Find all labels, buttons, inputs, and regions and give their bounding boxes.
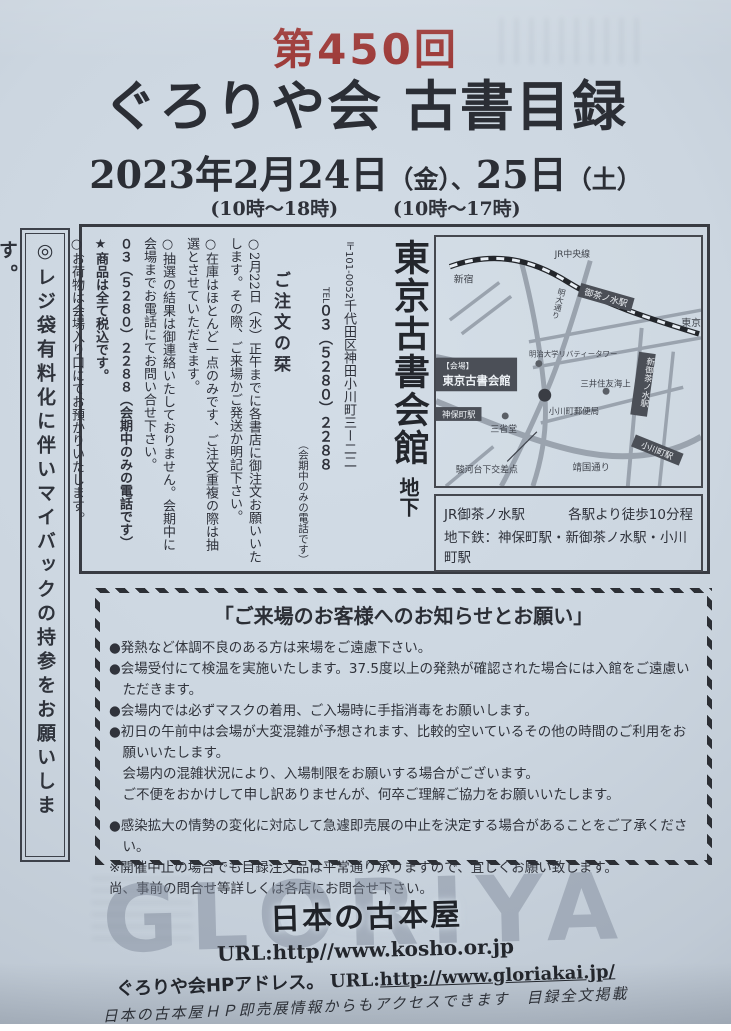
access-info: JR御茶ノ水駅 各駅より徒歩10分程 地下鉄：神保町駅・新御茶ノ水駅・小川町駅: [434, 494, 703, 572]
street-topleft-1: [450, 282, 499, 320]
access-row-jr: JR御茶ノ水駅 各駅より徒歩10分程: [444, 503, 693, 523]
notice-line-2: ●会場受付にて検温を実施いたします。37.5度以上の発熱が確認された場合には入館…: [109, 659, 698, 701]
tel-number: ０３（５２８０）２２８８: [317, 303, 333, 471]
access-walk-time: 各駅より徒歩10分程: [568, 503, 693, 523]
access-map-svg: 御茶ノ水駅 新御茶ノ水駅 【会場】 東京古書会館 神保町駅: [436, 237, 701, 486]
shinjuku-label: 新宿: [454, 272, 474, 285]
tel-note: （会期中のみの電話です）: [296, 241, 311, 571]
kosho-brand-logo: 日本の古本屋: [269, 889, 462, 938]
jr-railway: [450, 258, 699, 333]
order-note-4: ★商品は全て税込です。: [91, 237, 110, 563]
visitor-notice-box: 「ご来場のお客様へのお知らせとお願い」 ●発熱など体調不良のある方は来場をご遠慮…: [95, 588, 712, 865]
mitsui-label: 三井住友海上: [580, 378, 630, 388]
mitsui-dot: [603, 388, 610, 395]
time-saturday: (10時〜17時): [393, 198, 521, 220]
surugadai-label: 駿河台下交差点: [456, 463, 518, 475]
order-note-5: ○お荷物は会場入り口にてお預かりいたします。: [67, 237, 86, 563]
meiji-univ-label: 明治大学リバティータワー: [529, 349, 617, 359]
notice-line-7: ●感染拡大の情勢の変化に対応して急遽即売展の中止を決定する場合があることをご了承…: [109, 816, 698, 858]
notice-line-1: ●発熱など体調不良のある方は来場をご遠慮下さい。: [109, 638, 698, 659]
ochanomizu-station-label: 御茶ノ水駅: [583, 286, 629, 310]
jr-chuo-label: JR中央線: [554, 248, 591, 260]
ogawamachi-station-label: 小川町駅: [640, 440, 675, 462]
street-meidai-dori: [521, 261, 545, 486]
order-info-box: ご注文の栞 ○2月22日（水）正午までに各書店に御注文お願いいたします。その際、…: [79, 224, 710, 574]
order-notes: ご注文の栞 ○2月22日（水）正午までに各書店に御注文お願いいたします。その際、…: [82, 227, 294, 571]
order-note-3: ○抽選の結果は御連絡いたしておりません。会期中に会場までお電話にてお問い合せ下さ…: [139, 237, 177, 563]
access-map: 御茶ノ水駅 新御茶ノ水駅 【会場】 東京古書会館 神保町駅: [434, 235, 703, 488]
jimbocho-station-box: 神保町駅: [436, 407, 481, 421]
map-column: 御茶ノ水駅 新御茶ノ水駅 【会場】 東京古書会館 神保町駅: [434, 227, 707, 571]
venue-name: 東京古書会館: [388, 239, 429, 467]
notice-line-4: ●初日の午前中は会場が大変混雑が予想されます、比較的空いているその他の時間のご利…: [109, 722, 698, 764]
date-day1: 2023年2月24日: [89, 152, 388, 197]
date-weekday1: （金）、: [388, 165, 476, 194]
venue-floor: 地下: [396, 477, 420, 517]
postal-code: 〒101-0052: [343, 241, 354, 299]
flyer-page: 第450回 ぐろりや会 古書目録 2023年2月24日（金）、25日（土） (1…: [0, 0, 731, 1024]
date-weekday2: （土）: [567, 165, 642, 194]
access-jr-station: JR御茶ノ水駅: [444, 503, 525, 523]
url-prefix: URL:: [330, 970, 381, 993]
venue-address-block: 〒101-0052千代田区神田小川町三ー二二 TEL０３（５２８０）２２８８ （…: [294, 227, 358, 571]
order-note-3-phone: ０３（５２８０）２２８８（会期中のみの電話です）: [115, 237, 134, 563]
footer: GLORIYA 日本の古本屋 URL:http//www.kosho.or.jp…: [0, 866, 731, 1024]
access-row-subway: 地下鉄：神保町駅・新御茶ノ水駅・小川町駅: [444, 526, 693, 566]
order-note-2: ○在庫はほとんど一点のみです、ご注文重複の際は抽選とさせていただきます。: [182, 237, 220, 563]
venue-phone: TEL０３（５２８０）２２８８: [315, 241, 335, 571]
shin-ochanomizu-station-box: 新御茶ノ水駅: [630, 352, 656, 417]
yasukuni-label: 靖国通り: [572, 461, 610, 473]
page-title: ぐろりや会 古書目録: [0, 62, 731, 141]
venue-tag-label: 【会場】: [442, 361, 474, 371]
tel-label: TEL: [320, 287, 330, 303]
street-address: 千代田区神田小川町三ー二二: [341, 299, 356, 468]
order-note-1: ○2月22日（水）正午までに各書店に御注文お願いいたします。その際、ご来場かご発…: [225, 237, 263, 563]
sanseido-label: 三省堂: [490, 423, 517, 435]
railway-hatch: [450, 258, 699, 333]
venue-title-block: 東京古書会館地下: [358, 227, 434, 571]
venue-box-label: 東京古書会館: [441, 373, 510, 387]
order-notes-heading: ご注文の栞: [268, 237, 292, 563]
notice-title: 「ご来場のお客様へのお知らせとお願い」: [109, 600, 698, 629]
ogawamachi-po-label: 小川町郵便局: [549, 406, 599, 416]
notice-line-5: 会場内の混雑状況により、入場制限をお願いする場合がございます。: [109, 764, 698, 785]
street-vertical-right-2: [659, 352, 673, 486]
event-times: (10時〜18時) (10時〜17時): [0, 194, 731, 221]
tokyo-label: 東京: [681, 316, 701, 329]
venue-box: 【会場】 東京古書会館: [436, 358, 517, 392]
venue-address: 〒101-0052千代田区神田小川町三ー二二: [339, 241, 358, 571]
event-dates: 2023年2月24日（金）、25日（土）: [0, 144, 731, 199]
meidai-dori-label: 明大通り: [550, 287, 566, 320]
venue-location-dot: [538, 389, 551, 402]
notice-line-3: ●会場内では必ずマスクの着用、ご入場時に手指消毒をお願いします。: [109, 701, 698, 722]
ochanomizu-station-box: 御茶ノ水駅: [578, 283, 635, 312]
jimbocho-station-label: 神保町駅: [442, 409, 476, 419]
street-topleft-2: [462, 296, 511, 334]
hp-address-label: ぐろりや会HPアドレス。: [116, 971, 325, 999]
sanseido-dot: [502, 413, 509, 420]
meiji-univ-dot: [535, 360, 542, 367]
mybag-banner-text: ◎レジ袋有料化に伴いマイバックの持参をお願いします。: [25, 233, 65, 857]
mybag-banner: ◎レジ袋有料化に伴いマイバックの持参をお願いします。: [20, 228, 70, 862]
notice-line-6: ご不便をおかけして申し訳ありませんが、何卒ご理解ご協力をお願いいたします。: [109, 785, 698, 806]
time-friday: (10時〜18時): [210, 198, 338, 220]
date-day2: 25日: [476, 152, 567, 197]
